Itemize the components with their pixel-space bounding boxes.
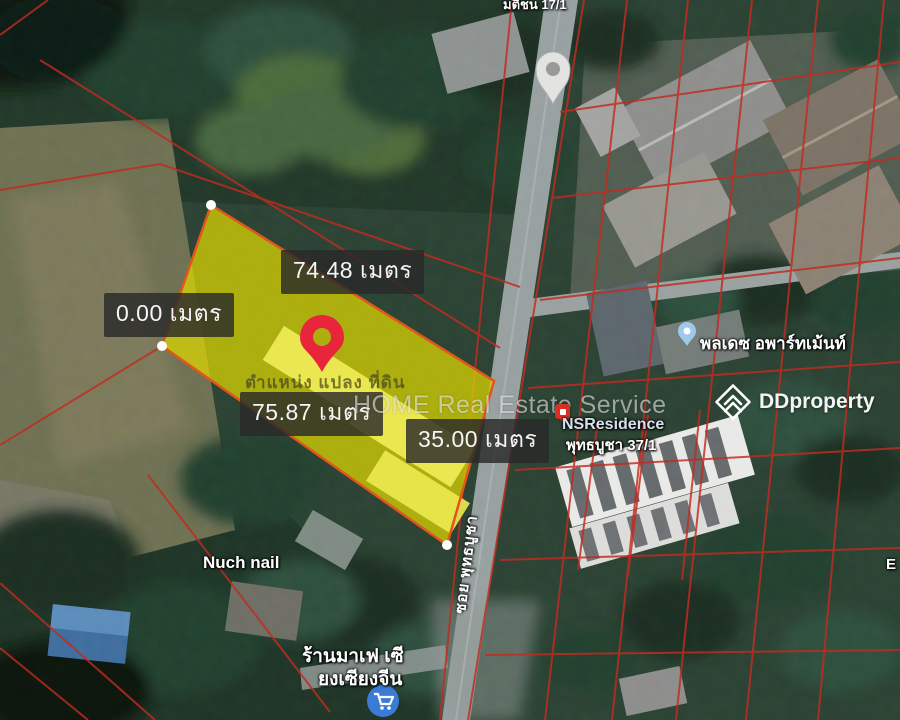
measurement-top-edge: 74.48 เมตร (281, 250, 424, 294)
ddproperty-logo-icon (714, 383, 752, 421)
nuch-nail-place-label: Nuch nail (203, 553, 280, 573)
ddproperty-brand-text: DDproperty (759, 390, 875, 414)
top-partial-place-label: มติชน 17/1 (503, 0, 567, 15)
measurement-left-edge: 0.00 เมตร (104, 293, 234, 337)
restaurant-place-label-line2: ยงเซียงจีน (318, 664, 402, 694)
measurement-right-edge: 35.00 เมตร (406, 419, 549, 463)
ddproperty-brand: DDproperty (714, 383, 875, 421)
nsresidence-address-label: พุทธบูชา 37/1 (566, 433, 656, 457)
nsresidence-place-label: NSResidence (562, 416, 664, 434)
property-listing-map-image: มติชน 17/1 74.48 เมตร 0.00 เมตร ตำแหน่ง … (0, 0, 900, 720)
apartment-place-label: พลเดซ อพาร์ทเม้นท์ (700, 330, 846, 357)
right-edge-partial-label: E (886, 556, 896, 573)
